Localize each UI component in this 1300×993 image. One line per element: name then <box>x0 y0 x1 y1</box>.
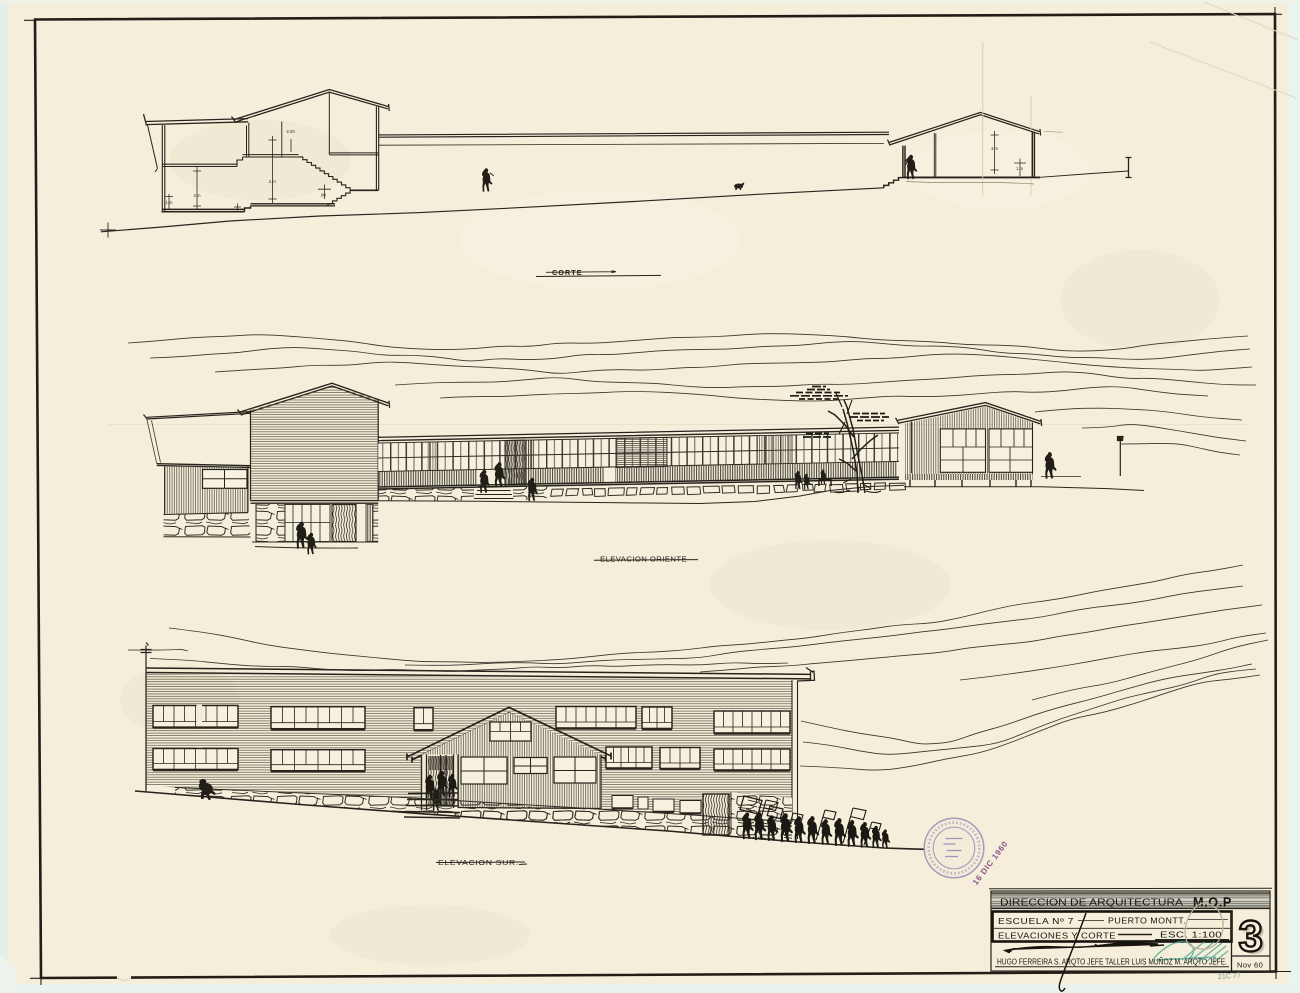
svg-text:ESC. 1:100: ESC. 1:100 <box>1160 931 1222 940</box>
svg-text:M.O.P: M.O.P <box>1193 896 1232 910</box>
svg-text:1.m: 1.m <box>1016 166 1023 171</box>
svg-text:Nov 60: Nov 60 <box>1237 961 1263 970</box>
svg-text:ELEVACION ORIENTE: ELEVACION ORIENTE <box>600 555 687 564</box>
svg-text:3.m: 3.m <box>991 146 998 151</box>
svg-text:ELEVACION SUR.: ELEVACION SUR. <box>438 858 519 867</box>
svg-text:2.20: 2.20 <box>287 129 296 134</box>
svg-text:ELEVACIONES Y CORTE: ELEVACIONES Y CORTE <box>998 932 1116 941</box>
svg-text:HUGO FERREIRA S. ARQTO JEFE T: HUGO FERREIRA S. ARQTO JEFE TALLER LUIS … <box>997 958 1227 967</box>
svg-text:.80: .80 <box>320 193 326 198</box>
svg-text:3: 3 <box>1239 912 1263 961</box>
svg-text:21C 77: 21C 77 <box>1218 970 1242 981</box>
svg-text:CORTE: CORTE <box>552 268 583 277</box>
svg-text:PUERTO MONTT.: PUERTO MONTT. <box>1108 917 1186 926</box>
svg-text:ESCUELA Nº 7: ESCUELA Nº 7 <box>998 917 1074 926</box>
svg-text:2.m: 2.m <box>269 179 276 184</box>
svg-text:DIRECCION DE ARQUITECTURA: DIRECCION DE ARQUITECTURA <box>1000 897 1183 909</box>
svg-text:1.m: 1.m <box>166 200 173 205</box>
svg-text:2.m: 2.m <box>194 193 201 198</box>
